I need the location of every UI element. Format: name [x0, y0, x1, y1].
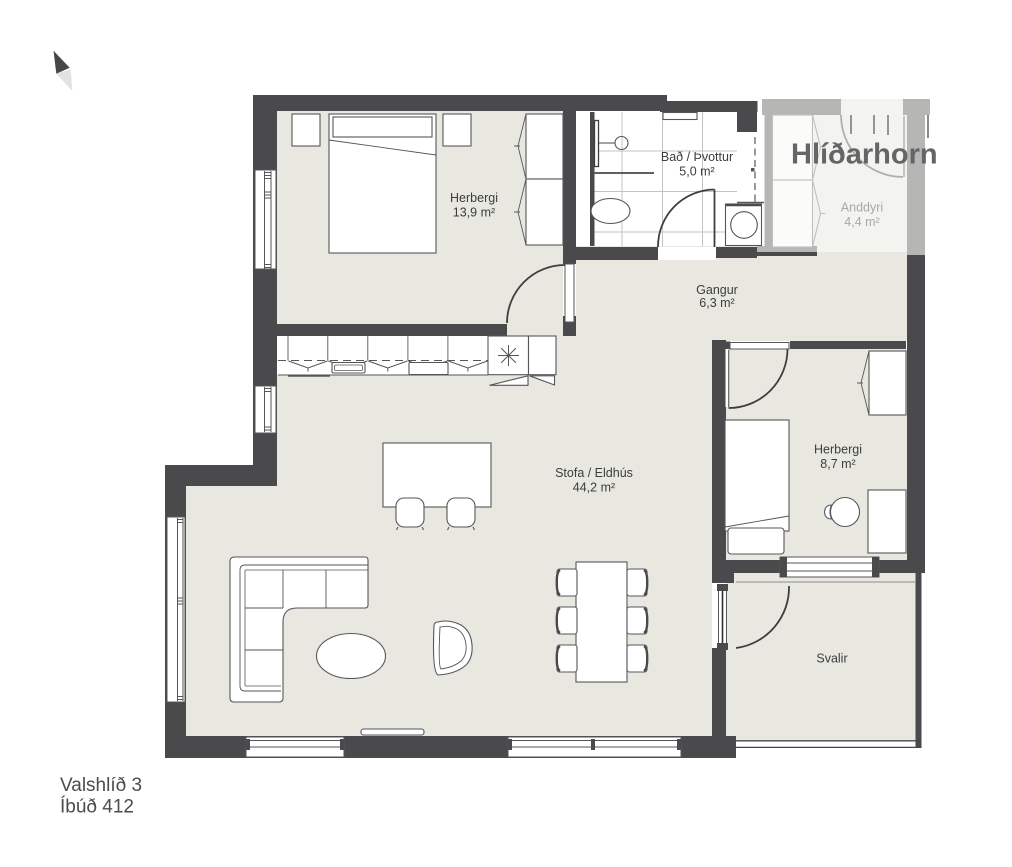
svg-text:Valshlíð 3: Valshlíð 3 — [60, 775, 142, 796]
svg-text:6,3 m²: 6,3 m² — [699, 296, 734, 310]
svg-text:Gangur: Gangur — [696, 283, 738, 297]
svg-text:4,4 m²: 4,4 m² — [844, 215, 879, 229]
svg-text:Svalir: Svalir — [816, 652, 847, 666]
svg-text:Herbergi: Herbergi — [450, 191, 498, 205]
svg-text:Herbergi: Herbergi — [814, 443, 862, 457]
svg-text:Anddyri: Anddyri — [841, 201, 883, 215]
svg-text:Bað / Þvottur: Bað / Þvottur — [661, 150, 733, 164]
svg-text:Hlíðarhorn: Hlíðarhorn — [791, 139, 938, 171]
svg-text:44,2 m²: 44,2 m² — [573, 481, 615, 495]
svg-text:5,0 m²: 5,0 m² — [679, 165, 714, 179]
svg-text:13,9 m²: 13,9 m² — [453, 206, 495, 220]
svg-text:Stofa / Eldhús: Stofa / Eldhús — [555, 466, 633, 480]
svg-text:8,7 m²: 8,7 m² — [820, 457, 855, 471]
svg-text:Íbúð 412: Íbúð 412 — [60, 797, 134, 818]
